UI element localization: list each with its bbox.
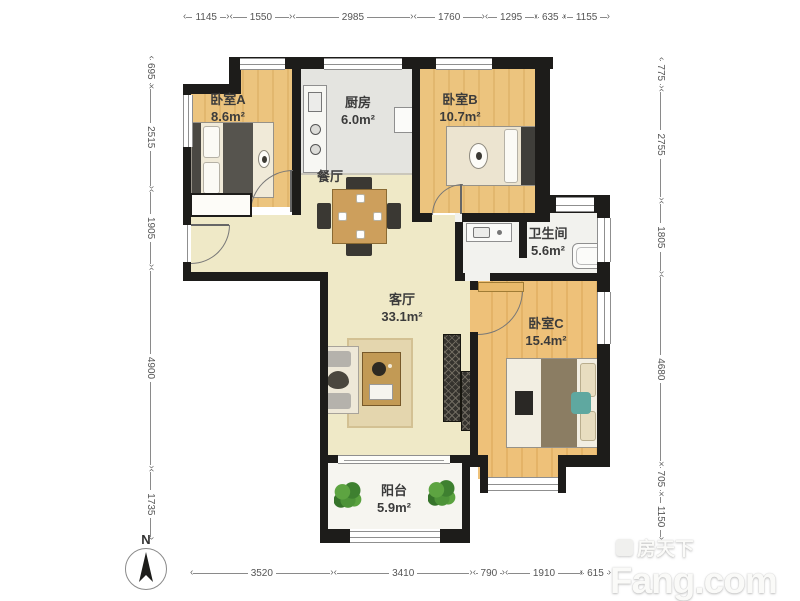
room-name: 客厅 (389, 292, 415, 307)
pillow-icon (504, 129, 518, 183)
entry-opening (183, 225, 191, 262)
dimension-segment: ‹1735› (146, 469, 157, 540)
room-name: 厨房 (345, 95, 371, 110)
dimension-segment: ‹1150› (656, 493, 667, 540)
north-arrow-icon (127, 549, 165, 587)
room-area: 5.9m² (377, 500, 411, 515)
room-name: 餐厅 (317, 169, 343, 184)
dimension-ruler-right: ‹775›‹2755›‹1805›‹4680›‹705›‹1150› (654, 57, 668, 540)
room-name: 阳台 (381, 483, 407, 498)
room-label-dining: 餐厅 (317, 169, 343, 186)
wall (462, 455, 470, 543)
wall (470, 281, 478, 290)
room-label-bedroom-b: 卧室B 10.7m² (439, 92, 480, 126)
bed-blanket (223, 123, 253, 197)
north-compass: N (120, 532, 172, 596)
bathroom-door-opening (465, 273, 490, 281)
decor-icon (372, 362, 386, 376)
wall (462, 213, 550, 222)
wall (420, 213, 432, 222)
wall (455, 222, 463, 281)
bed-tv-icon (515, 391, 533, 415)
bay-window-icon (488, 477, 558, 491)
dining-chair (317, 203, 331, 229)
wall (183, 272, 328, 281)
dining-chair (346, 242, 372, 256)
dimension-segment: ‹1155› (563, 12, 610, 23)
dimension-segment: ‹4900› (146, 267, 157, 468)
dimension-segment: ‹1145› (183, 12, 229, 23)
dimension-segment: ‹1760› (413, 12, 484, 23)
dimension-segment: ‹635› (537, 12, 563, 23)
plate-icon (373, 212, 382, 221)
room-name: 卧室B (442, 92, 477, 107)
window-icon (436, 58, 492, 70)
closet-icon (190, 193, 252, 217)
window-icon (350, 531, 440, 543)
dimension-segment: ‹695› (146, 57, 157, 86)
wall (490, 273, 610, 281)
room-name: 卧室A (210, 92, 245, 107)
window-icon (240, 58, 285, 70)
watermark-en: Fang.com (610, 562, 800, 599)
room-name: 卧室C (528, 316, 563, 331)
floor-plan-image: 卧室A 8.6m² 厨房 6.0m² 卧室B 10.7m² 餐厅 卫生间 5.6… (0, 0, 800, 601)
room-area: 15.4m² (525, 333, 566, 348)
dimension-segment: ‹1905› (146, 189, 157, 267)
watermark-cn: 房天下 (637, 534, 694, 561)
basin-icon (473, 227, 490, 238)
pillow-icon (203, 126, 220, 158)
wall (320, 455, 338, 463)
tray-icon (369, 384, 393, 400)
north-label: N (120, 532, 172, 547)
plate-icon (338, 212, 347, 221)
room-area: 5.6m² (531, 243, 565, 258)
dining-chair (387, 203, 401, 229)
door-gap-floor (470, 290, 478, 332)
plate-icon (356, 194, 365, 203)
dimension-segment: ‹1550› (229, 12, 292, 23)
wall (412, 57, 420, 222)
pillow-icon (580, 411, 596, 441)
fang-logo-icon (616, 539, 633, 556)
dimension-segment: ‹1295› (485, 12, 538, 23)
watermark-brand-row: 房天下 (616, 534, 800, 561)
plant-icon (334, 482, 362, 510)
door-leaf (290, 170, 292, 212)
sliding-door-icon (338, 455, 450, 464)
sofa-cushion (325, 351, 351, 367)
bed-icon (446, 126, 543, 186)
wall (558, 463, 566, 493)
plant-icon (428, 480, 456, 508)
dimension-ruler-left: ‹695›‹2515›‹1905›‹4900›‹1735› (144, 57, 158, 540)
stove-burner-icon (310, 124, 321, 135)
tv-cabinet-icon (443, 334, 461, 422)
dimension-segment: ‹3410› (334, 568, 473, 579)
window-icon (183, 95, 193, 147)
wall (535, 57, 550, 213)
wall (480, 463, 488, 493)
watermark: 房天下 Fang.com (610, 534, 800, 599)
dimension-segment: ‹615› (583, 568, 608, 579)
wall (320, 272, 328, 463)
room-area: 6.0m² (341, 112, 375, 127)
door-leaf (460, 184, 462, 214)
room-area: 10.7m² (439, 109, 480, 124)
dimension-segment: ‹1910› (505, 568, 583, 579)
room-name: 卫生间 (528, 226, 567, 241)
window-icon (324, 58, 402, 70)
compass-circle (125, 548, 167, 590)
dimension-ruler-top: ‹1145›‹1550›‹2985›‹1760›‹1295›‹635›‹1155… (183, 10, 610, 24)
dimension-ruler-bottom: ‹3520›‹3410›‹790›‹1910›‹615› (190, 566, 608, 580)
pillow-icon (571, 392, 591, 414)
dimension-segment: ‹4680› (656, 274, 667, 464)
stove-burner-icon (310, 144, 321, 155)
sofa-cushion (327, 371, 349, 389)
bed-icon (506, 358, 600, 448)
tap-icon (497, 230, 502, 235)
wall (470, 332, 478, 463)
sink-icon (308, 92, 322, 112)
window-icon (597, 218, 611, 262)
room-label-bedroom-a: 卧室A 8.6m² (210, 92, 245, 126)
window-icon (597, 292, 611, 344)
room-area: 8.6m² (211, 109, 245, 124)
bed-cushion (258, 150, 270, 168)
bed-cushion (469, 143, 488, 169)
plate-icon (356, 230, 365, 239)
dimension-segment: ‹2755› (656, 89, 667, 201)
dining-table (332, 189, 387, 244)
wall (519, 222, 527, 258)
room-label-balcony: 阳台 5.9m² (377, 483, 411, 517)
room-label-bathroom: 卫生间 5.6m² (528, 226, 567, 260)
cushion-dot (262, 156, 267, 163)
dimension-segment: ‹705› (656, 465, 667, 494)
pillow-icon (203, 162, 220, 194)
decor-icon (388, 364, 392, 368)
dimension-segment: ‹2985› (292, 12, 413, 23)
wall (320, 529, 350, 543)
dimension-segment: ‹3520› (190, 568, 334, 579)
dimension-segment: ‹2515› (146, 86, 157, 189)
dimension-segment: ‹775› (656, 57, 667, 89)
door-panel (478, 282, 524, 292)
bathroom-sink (466, 223, 512, 242)
door-leaf (191, 224, 229, 226)
room-label-kitchen: 厨房 6.0m² (341, 95, 375, 129)
dimension-segment: ‹790› (473, 568, 505, 579)
window-icon (556, 197, 594, 212)
room-label-living: 客厅 33.1m² (381, 292, 422, 326)
room-area: 33.1m² (381, 309, 422, 324)
bed-headboard (192, 123, 201, 197)
sofa-cushion (325, 393, 351, 409)
dimension-segment: ‹1805› (656, 201, 667, 274)
room-label-bedroom-c: 卧室C 15.4m² (525, 316, 566, 350)
kitchen-counter (303, 85, 327, 173)
cushion-dot (476, 152, 482, 160)
coffee-table (362, 352, 401, 406)
wall (292, 57, 301, 215)
